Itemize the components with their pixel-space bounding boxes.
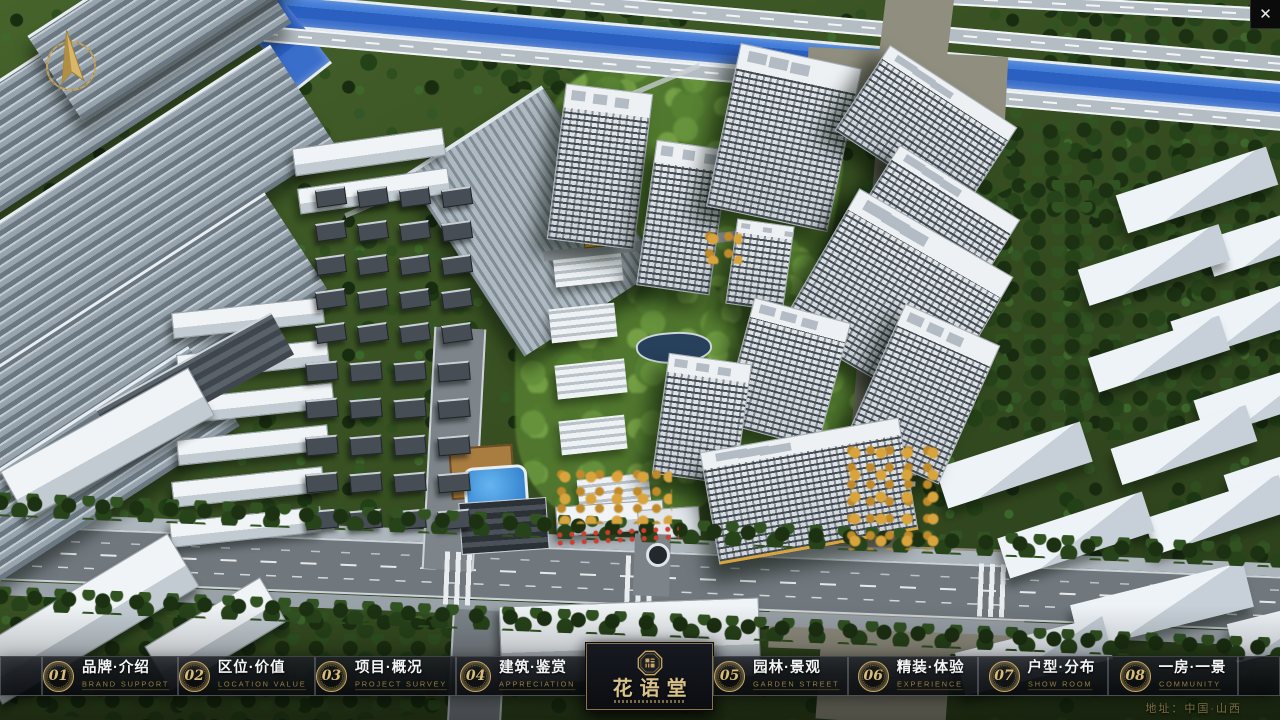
- nav-subtitle: BRAND SUPPORT: [82, 680, 169, 690]
- nav-title: 一房·一景: [1159, 661, 1227, 676]
- villa-building: [305, 398, 339, 420]
- nav-title: 项目·概况: [355, 661, 423, 676]
- nav-item-interior[interactable]: 06 精装·体验 EXPERIENCE: [848, 656, 978, 696]
- nav-badge-01: 01: [43, 661, 74, 692]
- nav-item-floorplans[interactable]: 07 户型·分布 SHOW ROOM: [978, 656, 1108, 696]
- bottom-navbar: 01 品牌·介绍 BRAND SUPPORT 02 区位·价值 LOCATION…: [0, 656, 1280, 696]
- villa-building: [305, 472, 339, 494]
- villa-building: [393, 361, 427, 383]
- nav-subtitle: EXPERIENCE: [897, 680, 963, 690]
- villa-building: [349, 361, 383, 383]
- nav-subtitle: APPRECIATION: [499, 680, 575, 690]
- nav-badge-08: 08: [1120, 661, 1151, 692]
- nav-badge-05: 05: [714, 661, 745, 692]
- entrance-fountain: [646, 543, 670, 567]
- presentation-stage: ✕ 01 品牌·介绍 BRAND SUPPORT 02 区位·价值 LOCATI…: [0, 0, 1280, 720]
- close-icon[interactable]: ✕: [1250, 0, 1280, 29]
- nav-badge-07: 07: [989, 661, 1020, 692]
- nav-badge-03: 03: [316, 661, 347, 692]
- nav-item-architecture[interactable]: 04 建筑·鉴赏 APPRECIATION: [456, 656, 586, 696]
- nav-item-project[interactable]: 03 项目·概况 PROJECT SURVEY: [315, 656, 456, 696]
- project-address: 地址：中国·山西: [1145, 700, 1242, 716]
- villa-building: [349, 472, 383, 494]
- nav-badge-06: 06: [858, 661, 889, 692]
- nav-subtitle: LOCATION VALUE: [218, 680, 306, 690]
- nav-subtitle: SHOW ROOM: [1028, 680, 1092, 690]
- nav-item-location[interactable]: 02 区位·价值 LOCATION VALUE: [178, 656, 315, 696]
- villa-building: [437, 361, 471, 383]
- nav-badge-04: 04: [460, 661, 491, 692]
- villa-building: [349, 398, 383, 420]
- compass-north-icon: [42, 26, 100, 98]
- nav-title: 建筑·鉴赏: [499, 661, 567, 676]
- villa-building: [349, 435, 383, 457]
- nav-item-brand[interactable]: 01 品牌·介绍 BRAND SUPPORT: [42, 656, 178, 696]
- midrise-building: [558, 415, 627, 456]
- nav-title: 户型·分布: [1028, 661, 1096, 676]
- navbar-edge-left: [0, 656, 42, 696]
- midrise-building: [554, 358, 627, 399]
- golden-trees: [552, 466, 672, 524]
- nav-item-views[interactable]: 08 一房·一景 COMMUNITY: [1108, 656, 1238, 696]
- villa-building: [393, 398, 427, 420]
- nav-title: 区位·价值: [218, 661, 286, 676]
- villa-building: [437, 435, 471, 457]
- nav-subtitle: COMMUNITY: [1159, 680, 1221, 690]
- nav-title: 园林·景观: [753, 661, 821, 676]
- villa-building: [437, 398, 471, 420]
- villa-building: [437, 472, 471, 494]
- logo-title: 花语堂: [606, 678, 694, 698]
- golden-trees: [700, 228, 742, 264]
- nav-subtitle: PROJECT SURVEY: [355, 680, 447, 690]
- logo-panel[interactable]: 花语堂: [586, 643, 713, 710]
- crosswalk: [443, 551, 475, 605]
- navbar-edge-right: [1238, 656, 1280, 696]
- villa-building: [305, 435, 339, 457]
- villa-building: [393, 435, 427, 457]
- nav-badge-02: 02: [179, 661, 210, 692]
- nav-item-landscape[interactable]: 05 园林·景观 GARDEN STREET: [713, 656, 848, 696]
- villa-building: [393, 472, 427, 494]
- nav-title: 品牌·介绍: [82, 661, 150, 676]
- midrise-building: [548, 303, 617, 344]
- nav-subtitle: GARDEN STREET: [753, 680, 839, 690]
- villa-building: [305, 361, 339, 383]
- logo-caption: [614, 700, 686, 703]
- seal-icon: [637, 650, 663, 676]
- golden-trees: [842, 442, 942, 550]
- nav-title: 精装·体验: [897, 661, 965, 676]
